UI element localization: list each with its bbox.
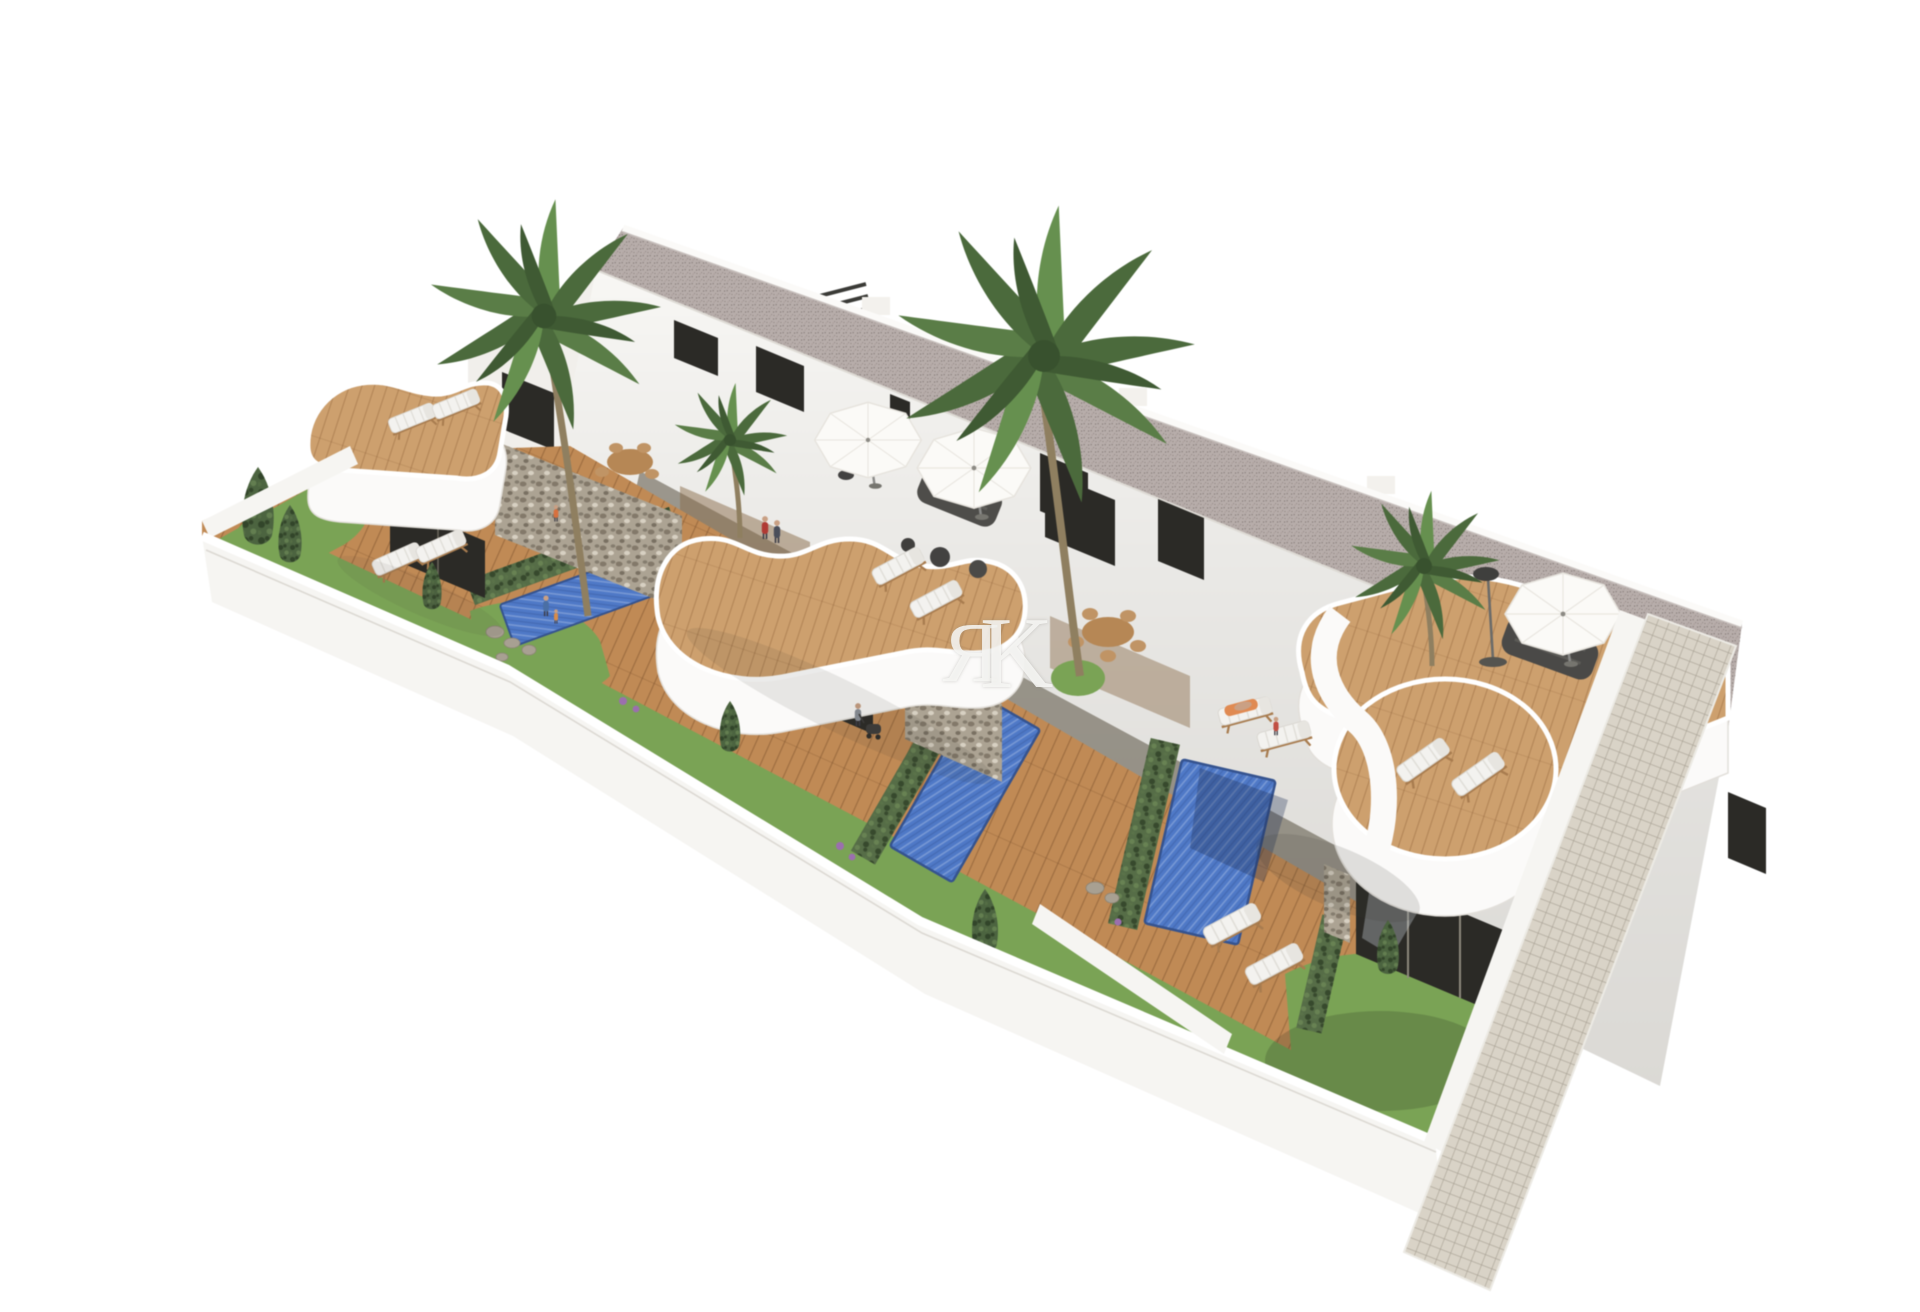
pouf (969, 560, 987, 578)
render-image: ЯK (40, 16, 1920, 1296)
pouf (930, 547, 950, 567)
watermark-letter: K (980, 597, 1054, 710)
watermark: ЯK (942, 603, 1053, 705)
